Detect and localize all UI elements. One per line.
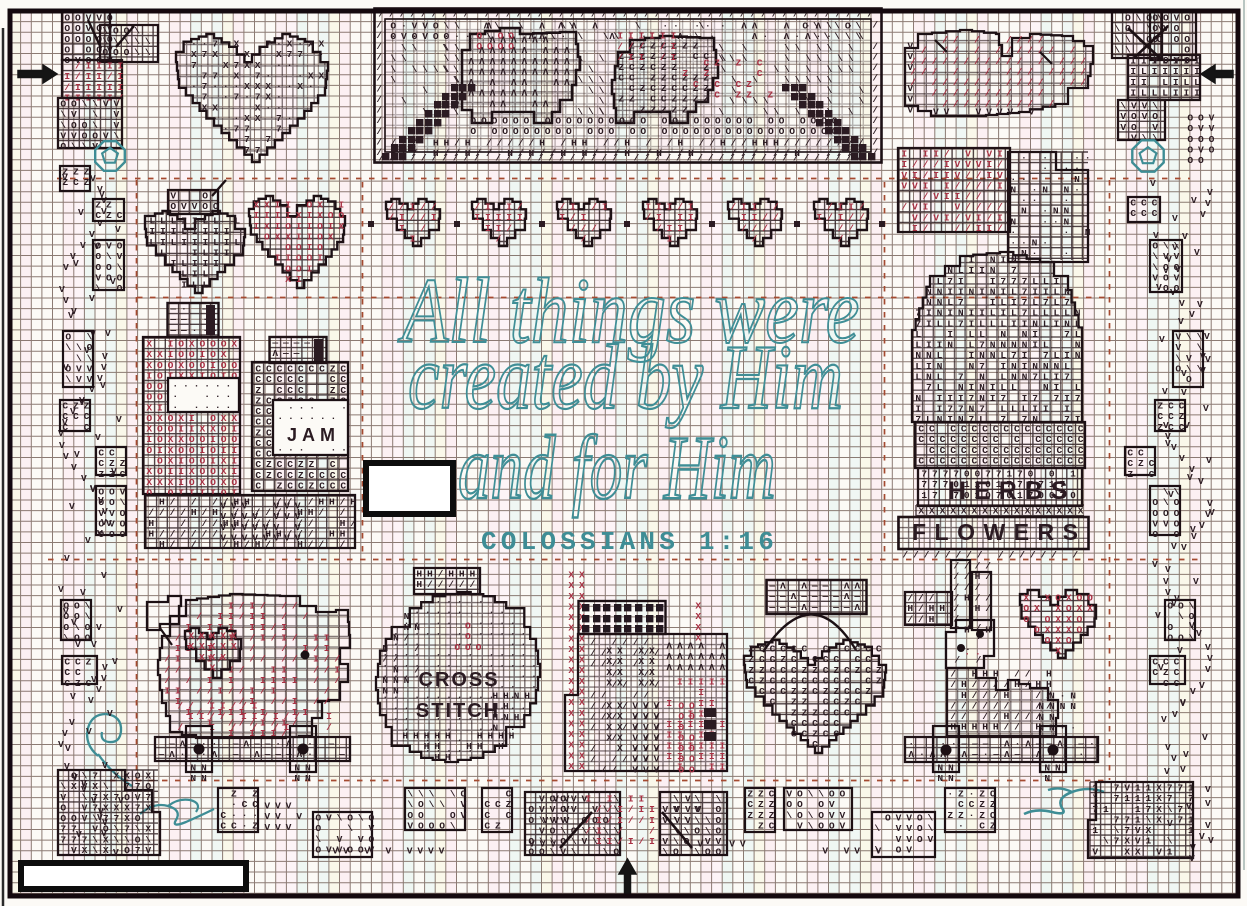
svg-text:I/ //II/: I/ //II/ <box>901 223 1007 234</box>
svg-text:/II: /II <box>645 223 688 234</box>
svg-text:XX: XX <box>606 701 627 712</box>
svg-text:/: / <box>730 234 762 245</box>
svg-text:Z Z C: Z Z C <box>682 68 767 79</box>
svg-text:C C CZ: C C CZ <box>682 79 756 90</box>
svg-text:\ V VO: \ V VO <box>315 834 379 845</box>
svg-text:V: V <box>101 570 107 581</box>
svg-text:V: V <box>73 258 79 269</box>
svg-text:VVV: VVV <box>632 743 664 754</box>
svg-text:I I II: I I II <box>585 794 649 805</box>
svg-text:V: V <box>76 829 82 840</box>
svg-text:Λ Λ ΛΛ ΛΛ: Λ Λ ΛΛ ΛΛ <box>468 77 574 88</box>
svg-text:NN: NN <box>294 763 315 774</box>
svg-text:HHHHH// H: HHHHH// H <box>950 722 1046 733</box>
svg-text:Z CCC ZC: Z CCC ZC <box>255 385 351 396</box>
svg-text:V: V <box>62 728 68 739</box>
svg-text:·77 7: ·77 7 <box>180 124 286 135</box>
svg-text:/: / <box>816 234 848 245</box>
svg-text:CCCCCCCCCCCCCCC: CCCCCCCCCCCCCCC <box>918 445 1088 456</box>
svg-text:OVOVOO: OVOVOO <box>390 31 454 42</box>
svg-text:V: V <box>70 691 76 702</box>
svg-text:OO: OO <box>678 733 699 744</box>
svg-text:\ VVO\: \ VVO\ <box>874 823 938 834</box>
svg-text://: // <box>816 223 859 234</box>
svg-text:V: V <box>96 622 102 633</box>
svg-text:V: V <box>1181 542 1187 553</box>
svg-text:/I/I//I: /I/I//I <box>585 815 659 826</box>
svg-text:\O\\ V: \O\\ V <box>407 799 471 810</box>
svg-text:ZZ: ZZ <box>95 200 116 211</box>
svg-text:IIILIIII: IIILIIII <box>149 226 234 237</box>
svg-text:V: V <box>115 224 121 235</box>
svg-text:\OO\ V: \OO\ V <box>60 120 124 131</box>
svg-text:\V: \V <box>1175 353 1196 364</box>
svg-text:V: V <box>113 847 119 858</box>
svg-text:V: V <box>107 708 113 719</box>
svg-text:C: C <box>748 739 822 750</box>
svg-text:V: V <box>102 760 108 771</box>
svg-text:/: / <box>376 52 387 63</box>
svg-text:V: V <box>1177 645 1183 656</box>
svg-text:NNL7 ILI7L7L7: NNL7 ILI7L7L7 <box>915 297 1074 308</box>
svg-text:V: V <box>59 284 65 295</box>
svg-text:and for Him: and for Him <box>458 419 776 519</box>
svg-text:XX: XX <box>638 656 659 667</box>
svg-text:V: V <box>106 518 112 529</box>
svg-text:V: V <box>1184 420 1190 431</box>
svg-text:/IIIII: /IIIII <box>64 82 128 93</box>
svg-text:VVV: VVV <box>632 754 664 765</box>
svg-text:V: V <box>88 695 94 706</box>
svg-text:/: / <box>559 234 591 245</box>
svg-text:VVV: VVV <box>632 733 664 744</box>
svg-text:NN: NN <box>1038 712 1059 723</box>
svg-text:V: V <box>1205 664 1211 675</box>
svg-text:/ I / / /I /: / I / / /I / <box>177 722 336 733</box>
svg-text:X: X <box>695 611 706 622</box>
svg-text://: // <box>382 654 403 665</box>
svg-text:XX: XX <box>568 570 589 581</box>
svg-text:VO V: VO V <box>1120 122 1163 133</box>
svg-text:V\\: V\\ <box>1175 332 1207 343</box>
svg-text:V: V <box>1158 662 1164 673</box>
svg-text:V: V <box>1189 309 1195 320</box>
svg-text:I///IVVVI/: I///IVVVI/ <box>901 159 1007 170</box>
svg-text:V: V <box>1206 455 1212 466</box>
svg-text:V: V <box>1165 438 1171 449</box>
svg-text://I//: //I// <box>388 202 441 213</box>
svg-text:O O: O O <box>1152 529 1184 540</box>
svg-text:VVV VVV: VVV VVV <box>220 501 305 512</box>
svg-text:ILIII: ILIII <box>149 258 223 269</box>
svg-text:\: \ <box>442 75 463 86</box>
svg-text:V: V <box>1156 282 1162 293</box>
svg-text:V: V <box>1165 742 1171 753</box>
svg-text:IIIIII: IIIIII <box>617 31 681 42</box>
svg-text:H/////: H///// <box>416 579 480 590</box>
svg-text:V: V <box>62 172 68 183</box>
svg-text:I/II/I: I/II/I <box>64 71 128 82</box>
svg-text:CCZ: CCZ <box>64 657 96 668</box>
svg-text:V: V <box>907 51 918 62</box>
svg-text:V: V <box>907 104 918 115</box>
svg-text:V: V <box>105 328 111 339</box>
svg-text:V: V <box>1205 198 1211 209</box>
svg-text:·7···XXX··X·: ·7···XXX··X· <box>180 81 318 92</box>
svg-text:ZZZZZ: ZZZZZ <box>618 104 692 115</box>
svg-text:IIIII: IIIII <box>666 677 730 688</box>
svg-text:··N·: ··N· <box>1010 238 1053 249</box>
svg-text:V: V <box>59 440 65 451</box>
svg-text:C C: C C <box>484 810 516 821</box>
svg-text:/: / <box>376 115 387 126</box>
svg-text:N/: N/ <box>382 633 414 644</box>
svg-text:OO\: OO\ <box>98 497 130 508</box>
svg-text:O \ V: O \ V <box>315 823 379 834</box>
svg-text:XOOXOOIOO: XOOXOOIOO <box>146 360 242 371</box>
svg-text:X: X <box>188 663 220 674</box>
svg-text:V: V <box>63 295 69 306</box>
svg-text:7 ·7·7X·: 7 ·7·7X· <box>180 92 286 103</box>
svg-text:V: V <box>1171 753 1177 764</box>
svg-text:XX: XX <box>568 580 589 591</box>
svg-text:V: V <box>69 501 75 512</box>
svg-text:/: / <box>872 52 883 63</box>
svg-text:FLOWERS: FLOWERS <box>912 519 1087 545</box>
svg-text:CZCCCCCCCC CZ: CZCCCCCCCC CZ <box>748 676 886 687</box>
svg-text:XI: XI <box>253 274 306 285</box>
svg-text:ZZC: ZZC <box>747 789 779 800</box>
svg-text:CC: CC <box>64 667 85 678</box>
svg-text:V: V <box>1171 442 1177 453</box>
svg-text:/// / / /// ////: /// / / /// //// <box>910 67 1091 78</box>
svg-text:V: V <box>86 726 92 737</box>
svg-text:STITCH: STITCH <box>416 700 500 722</box>
svg-text:V: V <box>1150 178 1156 189</box>
svg-text:COLOSSIANS 1:16: COLOSSIANS 1:16 <box>481 527 778 557</box>
svg-text:OVO: OVO <box>95 241 127 252</box>
svg-text:I/I: I/I <box>559 212 591 223</box>
svg-text:V: V <box>1202 732 1208 743</box>
svg-text:XXII OX I: XXII OX I <box>253 200 349 211</box>
svg-text:V: V <box>1186 801 1192 812</box>
svg-text:——Λ————Λ—: ——Λ————Λ— <box>768 591 865 602</box>
svg-text:·//: ·// <box>954 623 986 634</box>
svg-text:/: / <box>872 62 883 73</box>
svg-text:V: V <box>110 276 116 287</box>
svg-text:V: V <box>1197 299 1203 310</box>
svg-text:V: V <box>1171 541 1177 552</box>
svg-text:OVV: OVV <box>1187 123 1219 134</box>
svg-text:V: V <box>99 189 105 200</box>
svg-text:\\ \\: \\ \\ <box>390 43 464 54</box>
svg-text:I/I//: I/I// <box>816 212 869 223</box>
svg-text:OOIO: OOIO <box>253 242 327 253</box>
svg-text:V: V <box>63 451 69 462</box>
svg-text:V: V <box>1165 587 1171 598</box>
svg-text:OO OV: OO OV <box>407 810 471 821</box>
svg-text:XX: XX <box>606 646 627 657</box>
svg-text:XOOIIXXOI: XOOIIXXOI <box>146 424 242 435</box>
svg-text:O \: O \ <box>65 332 97 343</box>
svg-text:/II/: /II/ <box>816 202 869 213</box>
svg-text:······: ······ <box>277 413 341 424</box>
svg-text:\ \\ \\ \: \ \\ \\ \ <box>720 43 858 54</box>
svg-text:III/I: III/I <box>645 202 698 213</box>
svg-text:V: V <box>95 432 101 443</box>
svg-text:CCZCC: CCZCC <box>748 729 844 740</box>
svg-text:I: I <box>388 234 420 245</box>
svg-text:II/: II/ <box>474 223 517 234</box>
svg-text:OXIOOIXI: OXIOOIXI <box>146 456 242 467</box>
svg-text:OO: OO <box>678 754 699 765</box>
svg-text:V: V <box>1191 195 1197 206</box>
svg-text:V: V <box>1181 368 1187 379</box>
svg-text:V: V <box>80 587 86 598</box>
svg-text:/I / /: /I / / <box>585 826 659 837</box>
svg-text:CC: CC <box>1127 448 1148 459</box>
svg-text:/: / <box>474 234 506 245</box>
svg-text:CZC: CZC <box>1127 458 1159 469</box>
svg-text:V: V <box>1168 489 1174 500</box>
svg-text:\: \ <box>577 96 609 107</box>
svg-text:NN: NN <box>382 686 403 697</box>
svg-text:OVVO\: OVVO\ <box>874 813 938 824</box>
svg-text:/: / <box>872 83 883 94</box>
svg-text:CROSS: CROSS <box>418 669 499 691</box>
svg-text:XXXXX: XXXXX <box>188 631 241 642</box>
svg-text:OOI: OOI <box>253 263 317 274</box>
svg-text:V: V <box>1205 820 1211 831</box>
svg-text:V: V <box>90 483 96 494</box>
svg-text:CZZ: CZZ <box>747 799 779 810</box>
svg-text:V: V <box>117 604 123 615</box>
svg-text:V: V <box>69 717 75 728</box>
svg-text:\XVX\ 77O: \XVX\ 77O <box>60 781 156 792</box>
svg-text:V: V <box>91 674 97 685</box>
svg-text:V \7X7OV7: V \7X7OV7 <box>60 792 156 803</box>
svg-text:OXXIIOX: OXXIIOX <box>253 232 338 243</box>
svg-text:N /: N / <box>382 643 425 654</box>
svg-text:V: V <box>1193 576 1199 587</box>
svg-text:XX: XX <box>638 667 659 678</box>
svg-text:V: V <box>100 380 106 391</box>
svg-text:I: I <box>645 234 677 245</box>
svg-text:///: /// <box>953 582 985 593</box>
svg-text:VVV: VVV <box>632 711 664 722</box>
svg-text:V: V <box>1159 334 1165 345</box>
svg-text:VVV: VVV <box>632 722 664 733</box>
svg-text:V: V <box>1155 610 1161 621</box>
svg-text:V: V <box>1199 680 1205 691</box>
svg-text:V: V <box>1180 764 1186 775</box>
svg-text:OO: OO <box>678 764 699 775</box>
svg-text:O: O <box>454 621 475 632</box>
svg-text:V\OOV: V\OOV <box>786 821 850 832</box>
svg-text:NN: NN <box>937 773 958 784</box>
svg-text:ΛΛΛΛΛΛ: ΛΛΛΛΛΛ <box>666 662 730 673</box>
svg-text:L I LL N NI 7L: L I LL N NI 7L <box>915 329 1085 340</box>
svg-text:X7X X X77 ·: X7X X X77 · <box>180 49 329 60</box>
svg-text:IIOOI: IIOOI <box>253 253 327 264</box>
svg-text:O\ \O\: O\ \O\ <box>802 21 866 32</box>
svg-text:OO\: OO\ <box>1167 601 1199 612</box>
svg-text:V: V <box>1167 818 1173 829</box>
svg-text:ΛΛΛΛΛΛΛΛΛΛ: ΛΛΛΛΛΛΛΛΛΛ <box>468 56 574 67</box>
svg-text:\\\\\: \\\\\ <box>802 31 866 42</box>
svg-text:XX: XX <box>568 740 589 751</box>
svg-text:——···: ——··· <box>169 325 223 336</box>
svg-text:O OXXO: O OXXO <box>1023 614 1087 625</box>
svg-text:··· ··: ··· ·· <box>277 445 351 456</box>
svg-text:Z Z: Z Z <box>220 789 263 800</box>
svg-text:OO\: OO\ <box>95 262 127 273</box>
svg-text:V: V <box>80 240 86 251</box>
svg-text:// II//I: // II//I <box>177 701 262 712</box>
svg-text:CCZZ: CCZZ <box>947 799 1000 810</box>
svg-text:\VV: \VV <box>1152 251 1184 262</box>
svg-text:IIIIXIXOO: IIIIXIXOO <box>253 210 349 221</box>
svg-text:/II /I: /II /I <box>617 52 681 63</box>
svg-text:CCC: CCC <box>1130 208 1162 219</box>
svg-text:\: \ <box>390 85 433 96</box>
svg-text:ZZZCCC: ZZZCCC <box>748 707 854 718</box>
svg-text:X: X <box>695 622 706 633</box>
svg-text:N III7NI7 I7 7I7: N III7NI7 I7 7I7 <box>915 393 1085 404</box>
svg-text:V: V <box>81 778 87 789</box>
svg-text:\O \OO: \O \OO <box>662 847 726 858</box>
svg-text:· ····: · ···· <box>172 402 236 413</box>
svg-text:VVOV: VVOV <box>874 834 938 845</box>
svg-text:I /: I / <box>388 223 431 234</box>
svg-text:XOIIXOOXI: XOIIXOOXI <box>146 466 242 477</box>
svg-text:ΛΛΛΛ Λ: ΛΛΛΛ Λ <box>666 641 730 652</box>
svg-text:VVV: VVV <box>264 822 296 833</box>
svg-text:V: V <box>1200 351 1206 362</box>
svg-text:V: V <box>111 466 117 477</box>
svg-text:7ININIILIL7LLLLN: 7ININIILIL7LLLLN <box>915 308 1085 319</box>
svg-text:/: / <box>376 94 387 105</box>
svg-text:/: / <box>872 126 883 137</box>
svg-text:VOOO\: VOOO\ <box>407 821 460 832</box>
svg-text:XX: XX <box>606 711 627 722</box>
svg-text:I: I <box>666 687 709 698</box>
svg-text:LLLIILL L: LLLIILL L <box>149 216 245 227</box>
svg-text:XX: XX <box>638 646 659 657</box>
svg-text:V: V <box>89 293 95 304</box>
svg-text:V: V <box>1180 697 1186 708</box>
svg-text:V: V <box>907 94 918 105</box>
svg-text:V: V <box>63 262 69 273</box>
svg-text:O \: O \ <box>1167 622 1199 633</box>
svg-text:ZZCCCZZCZCZCZ: ZZCCCZZCZCZCZ <box>748 665 886 676</box>
svg-text:/: / <box>872 137 883 148</box>
svg-text:/II /: /II / <box>730 202 783 213</box>
svg-text:XX: XX <box>568 729 589 740</box>
svg-text:// //H///: // //H/// <box>950 711 1046 722</box>
svg-text:V: V <box>1207 653 1213 664</box>
svg-text:V: V <box>1163 576 1169 587</box>
svg-text:NLIIN 7: NLIIN 7 <box>915 265 1021 276</box>
svg-text:\: \ <box>442 43 453 54</box>
svg-text:/: / <box>376 137 387 148</box>
svg-text:ZC: ZC <box>747 821 779 832</box>
svg-text:V: V <box>101 673 107 684</box>
svg-text:OO\: OO\ <box>1167 633 1199 644</box>
svg-text:\\O: \\O <box>65 342 97 353</box>
svg-text:NNNN: NNNN <box>1038 701 1081 712</box>
svg-text:OO: OO <box>678 743 699 754</box>
svg-text:XXXXX: XXXXX <box>188 641 241 652</box>
svg-text:////: //// <box>953 561 996 572</box>
svg-text:OXO: OXO <box>1023 635 1076 646</box>
svg-text:OO: OO <box>1187 155 1208 166</box>
svg-text:V: V <box>1199 831 1205 842</box>
svg-text:LIN N7 ININNNL: LIN N7 ININNNL <box>915 361 1074 372</box>
svg-text:V: V <box>1183 749 1189 760</box>
svg-text:V: V <box>1190 686 1196 697</box>
svg-text:XXX: XXX <box>188 652 231 663</box>
svg-text:V: V <box>85 535 91 546</box>
svg-text://////// ////// /: //////// ////// / <box>902 550 1083 561</box>
svg-text:ΛΛΛΛΛΛ: ΛΛΛΛΛΛ <box>666 651 730 662</box>
svg-text:V: V <box>68 310 74 321</box>
svg-text:CCCCC: CCCCC <box>748 718 844 729</box>
svg-text:I/I/ //: I/I/ // <box>164 601 302 612</box>
svg-text:CC·Z: CC·Z <box>220 821 263 832</box>
svg-text:XX: XX <box>606 722 627 733</box>
svg-text:V: V <box>75 639 81 650</box>
svg-text:C···: C··· <box>220 810 263 821</box>
svg-text:O OO: O OO <box>476 31 519 42</box>
svg-text:VO\\OO: VO\\OO <box>786 789 850 800</box>
svg-text:V: V <box>58 739 64 750</box>
svg-text:XX X··: XX X·· <box>180 102 286 113</box>
svg-text:\\: \\ <box>65 353 97 364</box>
svg-text:V: V <box>1200 209 1206 220</box>
svg-text:VOVO: VOVO <box>1120 111 1163 122</box>
svg-text:XX: XX <box>606 656 627 667</box>
svg-text:HHHHH HHHH: HHHHH HHHH <box>402 731 519 742</box>
svg-text:—— ··: —— ·· <box>169 314 223 325</box>
svg-text:V: V <box>71 462 77 473</box>
svg-text:/: / <box>872 41 883 52</box>
svg-text:V: V <box>1198 476 1204 487</box>
svg-text:ILIIIII: ILIIIII <box>1130 66 1204 77</box>
svg-text:VVO: VVO <box>98 508 130 519</box>
svg-text:II// II/I// I: II// II/I// I <box>177 711 336 722</box>
svg-text:V: V <box>102 662 108 673</box>
svg-text:/I II: /I II <box>645 212 698 223</box>
svg-text:///: /// <box>730 223 773 234</box>
svg-text:NNN: NNN <box>382 675 414 686</box>
svg-text:NN: NN <box>1044 763 1065 774</box>
svg-text:OOV: OOV <box>98 487 130 498</box>
svg-text:OVO: OVO <box>1187 145 1219 156</box>
svg-text:N ·NN: N ·NN <box>1010 206 1074 217</box>
svg-text:\\: \\ <box>577 85 609 96</box>
svg-text:JAM: JAM <box>287 425 340 445</box>
svg-text:ZZZ: ZZZ <box>747 810 779 821</box>
svg-text:· ·XX 7·: · ·XX 7· <box>180 113 297 124</box>
svg-text:X: X <box>606 743 627 754</box>
svg-text:/: / <box>376 73 387 84</box>
svg-text:X: X <box>1023 646 1066 657</box>
svg-text:/: / <box>376 62 387 73</box>
svg-text://H: //H <box>907 614 939 625</box>
svg-text:XX: XX <box>638 678 659 689</box>
svg-text:II LILL: II LILL <box>1130 77 1204 88</box>
